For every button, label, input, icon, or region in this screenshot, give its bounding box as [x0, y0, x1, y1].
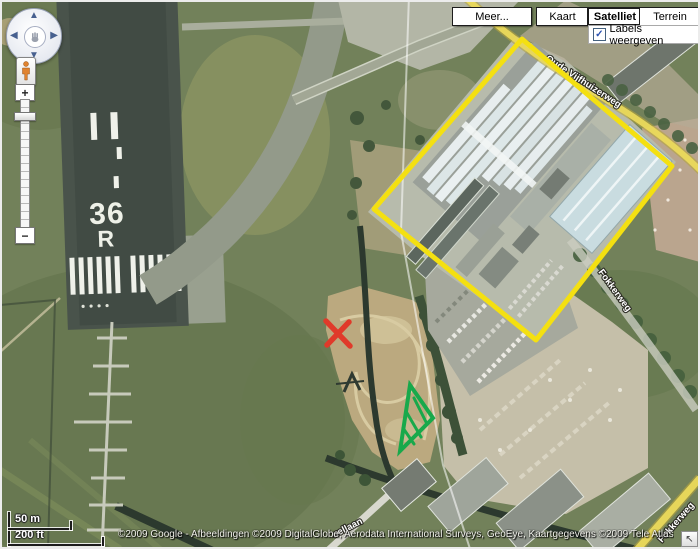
checkbox-check-icon: ✓: [595, 30, 603, 40]
scale-line: [8, 528, 72, 530]
google-maps-window: 36 R: [0, 0, 700, 549]
hand-icon: [29, 31, 41, 43]
scale-line: [8, 544, 104, 546]
scale-line: [102, 537, 104, 546]
pan-control[interactable]: ▲ ▼ ◀ ▶: [6, 8, 62, 64]
pan-up-icon[interactable]: ▲: [29, 11, 39, 21]
scale-metric-label: 50 m: [15, 513, 40, 525]
scale-bar: 50 m 200 ft: [8, 502, 120, 548]
pegman-icon: [20, 61, 32, 82]
runway-letter-marking: R: [97, 225, 115, 252]
scale-line: [70, 521, 72, 530]
collapse-arrow-icon: ↖: [685, 534, 693, 545]
collapse-control[interactable]: ↖: [681, 531, 698, 547]
pan-center-button[interactable]: [24, 26, 46, 48]
map-canvas[interactable]: 36 R: [0, 0, 700, 549]
zoom-slider-handle[interactable]: [14, 112, 36, 121]
meer-button[interactable]: Meer...: [452, 7, 532, 26]
pan-left-icon[interactable]: ◀: [10, 31, 18, 41]
street-view-pegman-control[interactable]: [16, 57, 36, 86]
attribution-bar: ©2009 Google - Afbeeldingen ©2009 Digita…: [118, 529, 674, 544]
scale-imperial-label: 200 ft: [15, 529, 44, 541]
attribution-text: ©2009 Google - Afbeeldingen ©2009 Digita…: [118, 529, 674, 540]
pan-right-icon[interactable]: ▶: [50, 31, 58, 41]
labels-checkbox[interactable]: ✓: [593, 28, 606, 41]
labels-overlay-panel: ✓ Labels weergeven: [588, 25, 700, 44]
kaart-button[interactable]: Kaart: [536, 7, 589, 26]
zoom-out-button[interactable]: −: [15, 227, 35, 244]
labels-checkbox-label: Labels weergeven: [610, 23, 695, 47]
